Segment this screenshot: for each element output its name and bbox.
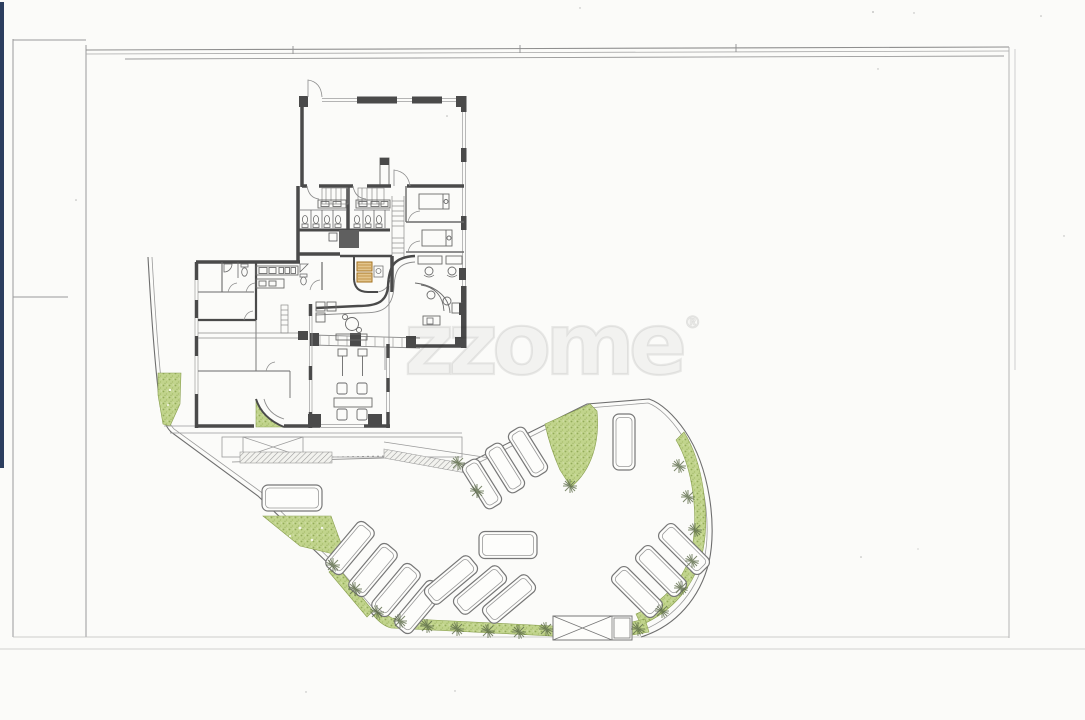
elevator (339, 230, 359, 248)
shrub-icon (563, 479, 577, 493)
shrub-icon (512, 625, 526, 639)
stair-shaft (392, 196, 404, 258)
desk (418, 256, 442, 277)
shelf-unit (281, 305, 288, 333)
parking-space (479, 532, 537, 559)
colonnade-strip (310, 333, 420, 348)
scan-specks (75, 7, 1065, 692)
treatment-rooms (406, 186, 464, 252)
sink-counters (318, 200, 390, 208)
left-wing (195, 262, 310, 428)
shrub-icon (481, 624, 495, 638)
sheet-frame (0, 2, 1085, 693)
shrub-icon (348, 582, 362, 596)
shrub-icon (631, 622, 645, 636)
shrub-icon (393, 614, 407, 628)
green-corner-quadrant (256, 399, 284, 427)
storage-room (340, 256, 392, 292)
shrub-icon (681, 490, 695, 504)
scan-strip (0, 2, 4, 468)
table (334, 398, 372, 407)
shrub-icon (688, 523, 702, 537)
reception-furniture (316, 302, 372, 420)
restrooms (298, 186, 404, 290)
curved-desk (421, 285, 444, 311)
wc-room (222, 262, 248, 292)
shrub-icon (420, 619, 434, 633)
shrub-icon (326, 558, 340, 572)
green-middle-wedge (545, 404, 598, 487)
shrub-icon (672, 459, 686, 473)
parking-space (613, 414, 635, 470)
shrub-icon (370, 605, 384, 619)
styling-station (358, 349, 367, 376)
office-area (385, 256, 466, 370)
parking-space (262, 485, 322, 511)
site-plan-drawing (0, 0, 1085, 720)
building-floor-plan (195, 80, 467, 428)
entrance-door-arc (308, 80, 322, 97)
shrub-icon (450, 622, 464, 636)
toilets (302, 216, 382, 228)
massage-bed (419, 194, 449, 209)
hall-door-arc (394, 170, 410, 186)
styling-station (338, 349, 347, 376)
shrub-icon (674, 581, 688, 595)
shrub-icon (470, 484, 484, 498)
gate-box (553, 616, 632, 640)
scanned-plan-page: zzome® (0, 0, 1085, 720)
massage-bed (422, 230, 452, 246)
small-wc (300, 262, 322, 290)
kitchen (256, 266, 298, 288)
shrub-icon (655, 604, 669, 618)
duct-box (329, 233, 337, 241)
shrub-icon (451, 456, 465, 470)
orange-benches (357, 262, 372, 282)
paved-strip (240, 452, 332, 463)
green-left-strip (158, 373, 181, 426)
shrub-icon (539, 622, 553, 636)
shrub-icon (685, 554, 699, 568)
